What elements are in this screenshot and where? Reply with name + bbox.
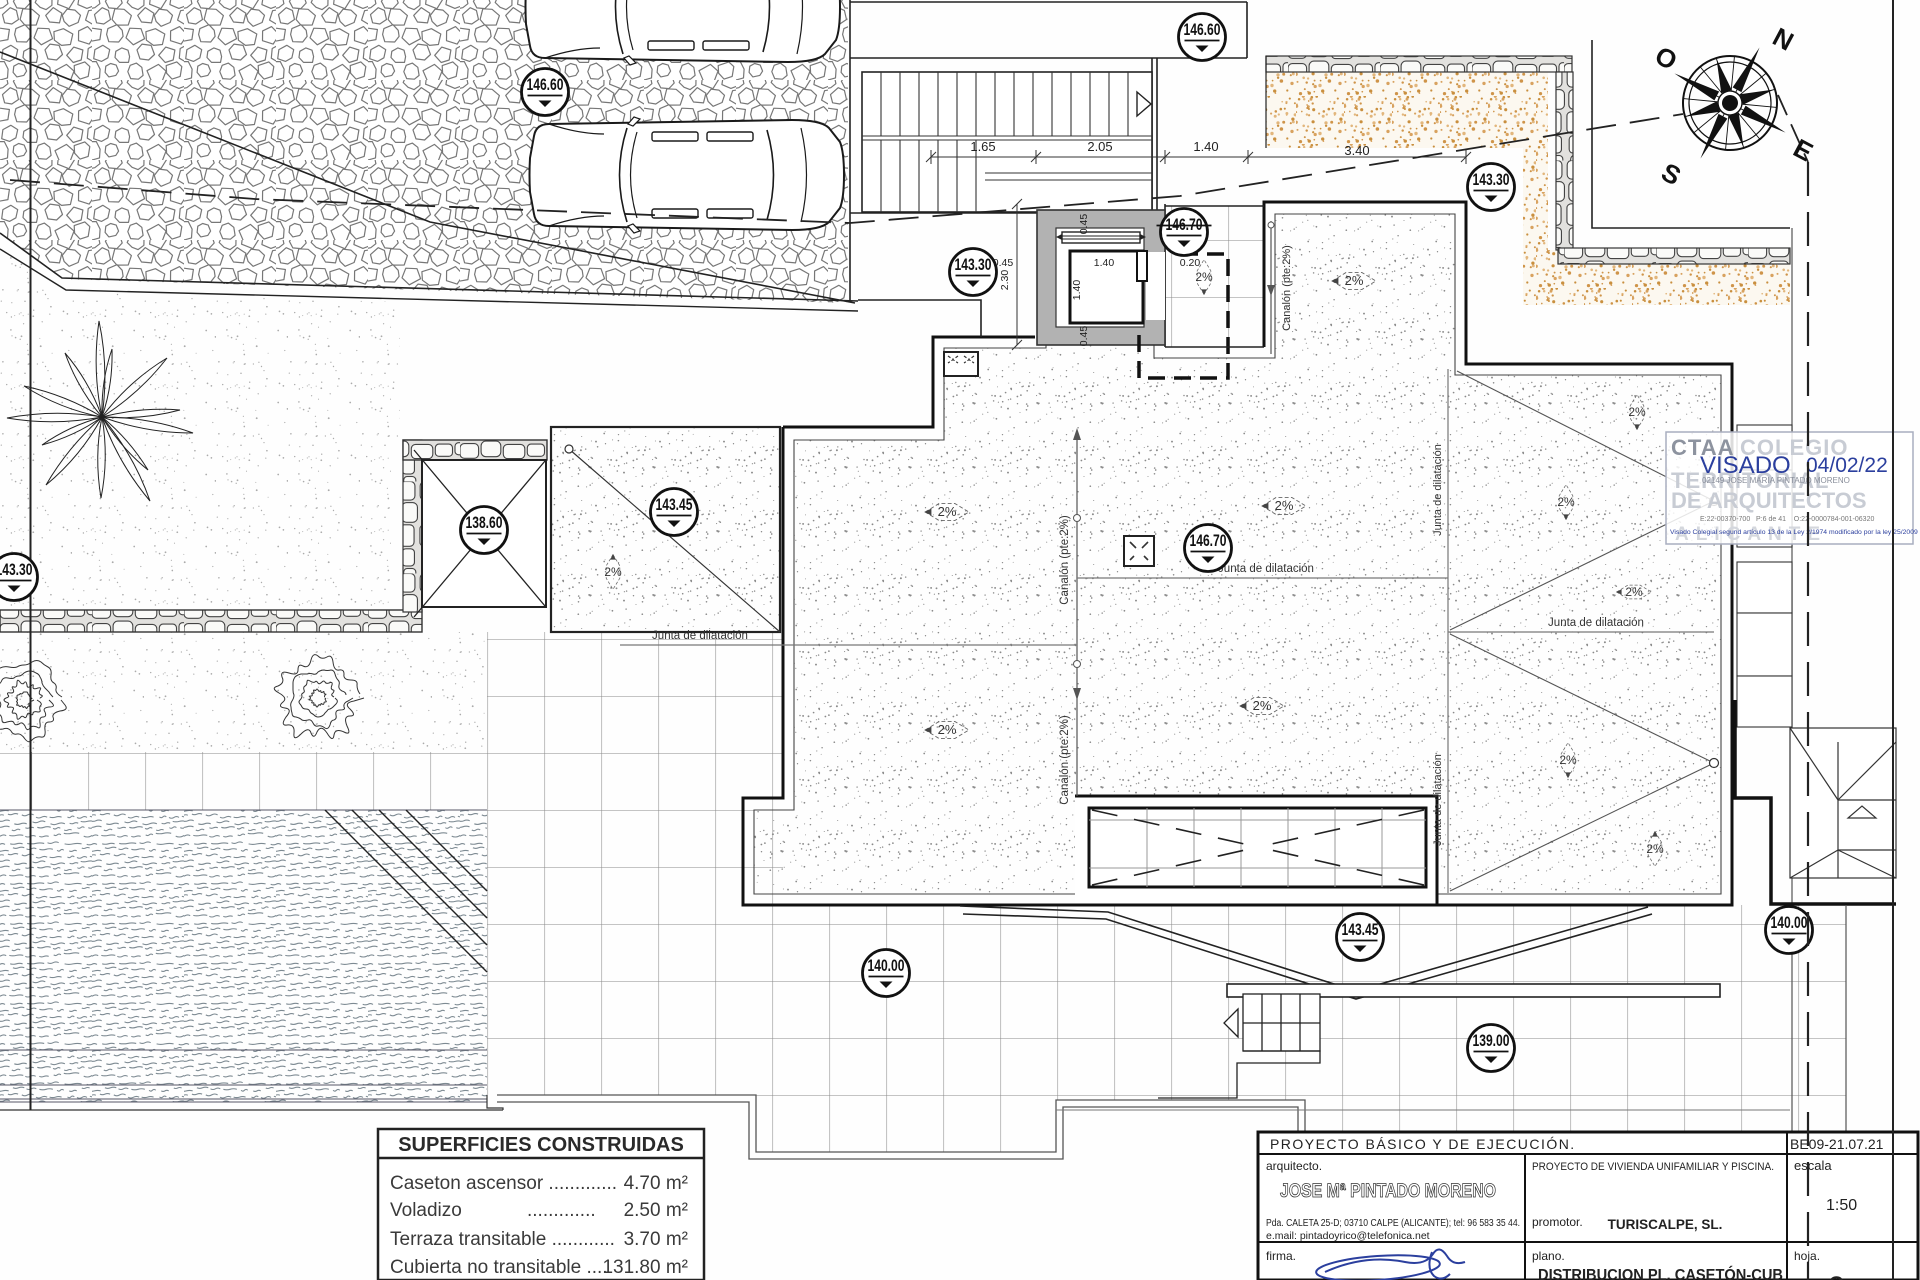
svg-text:3.40: 3.40 bbox=[1344, 143, 1369, 158]
svg-text:146.60: 146.60 bbox=[1184, 21, 1221, 39]
svg-text:2%: 2% bbox=[1275, 498, 1294, 513]
svg-text:VISADO: VISADO bbox=[1700, 452, 1791, 479]
svg-text:138.60: 138.60 bbox=[466, 514, 503, 532]
svg-text:Voladizo: Voladizo bbox=[390, 1200, 462, 1221]
svg-text:hoja.: hoja. bbox=[1794, 1249, 1820, 1263]
svg-text:Visado Colegial segund artícul: Visado Colegial segund artículo 13 de la… bbox=[1670, 529, 1918, 536]
svg-text:Junta de dilatación: Junta de dilatación bbox=[1432, 444, 1444, 536]
svg-text:2%: 2% bbox=[1646, 842, 1664, 856]
svg-text:143.45: 143.45 bbox=[656, 496, 693, 514]
svg-text:1.40: 1.40 bbox=[1071, 280, 1083, 301]
svg-text:140.00: 140.00 bbox=[868, 957, 905, 975]
svg-text:arquitecto.: arquitecto. bbox=[1266, 1159, 1322, 1173]
svg-text:143.30: 143.30 bbox=[955, 256, 992, 274]
svg-text:Pda. CALETA 25-D; 03710 CALPE: Pda. CALETA 25-D; 03710 CALPE (ALICANTE)… bbox=[1266, 1218, 1520, 1229]
svg-text:139.00: 139.00 bbox=[1473, 1032, 1510, 1050]
svg-text:2.50 m²: 2.50 m² bbox=[624, 1200, 688, 1221]
svg-text:2%: 2% bbox=[1195, 270, 1213, 284]
svg-text:PROYECTO BÁSICO Y DE EJECU: PROYECTO BÁSICO Y DE EJECUCIÓN. bbox=[1270, 1136, 1576, 1152]
svg-text:Canalón (pte:2%): Canalón (pte:2%) bbox=[1059, 515, 1071, 605]
svg-text:SUPERFICIES CONSTRUIDAS: SUPERFICIES CONSTRUIDAS bbox=[398, 1134, 684, 1156]
svg-text:143.30: 143.30 bbox=[1473, 171, 1510, 189]
svg-text:PROYECTO DE VIVIENDA UNIFAMILI: PROYECTO DE VIVIENDA UNIFAMILIAR Y PISCI… bbox=[1532, 1161, 1774, 1173]
svg-text:2%: 2% bbox=[1628, 405, 1646, 419]
svg-text:02149 JOSE MARIA PINTADO MOREN: 02149 JOSE MARIA PINTADO MORENO bbox=[1702, 476, 1850, 485]
svg-text:Canalón (pte:2%): Canalón (pte:2%) bbox=[1281, 245, 1293, 331]
svg-text:0.45: 0.45 bbox=[1078, 326, 1090, 347]
svg-text:.............: ............. bbox=[527, 1200, 596, 1221]
svg-text:Canalón (pte:2%): Canalón (pte:2%) bbox=[1059, 715, 1071, 805]
svg-text:146.70: 146.70 bbox=[1190, 532, 1227, 550]
svg-text:promotor.: promotor. bbox=[1532, 1215, 1583, 1229]
svg-text:Junta de dilatación: Junta de dilatación bbox=[1432, 754, 1444, 846]
svg-text:Terraza transitable .........: Terraza transitable ............ bbox=[390, 1229, 615, 1250]
svg-text:2%: 2% bbox=[1625, 585, 1643, 599]
svg-text:escala: escala bbox=[1794, 1158, 1832, 1173]
svg-text:firma.: firma. bbox=[1266, 1249, 1296, 1263]
svg-text:DISTRIBUCION PL. CASETÓN-CUB: DISTRIBUCION PL. CASETÓN-CUB bbox=[1538, 1265, 1783, 1280]
svg-text:1.65: 1.65 bbox=[970, 139, 995, 154]
svg-text:0.20: 0.20 bbox=[1180, 257, 1201, 269]
svg-text:1.40: 1.40 bbox=[1193, 139, 1218, 154]
svg-text:143.45: 143.45 bbox=[1342, 921, 1379, 939]
svg-text:2%: 2% bbox=[1253, 698, 1272, 713]
svg-text:1.40: 1.40 bbox=[1094, 257, 1115, 269]
svg-text:Junta de dilatación: Junta de dilatación bbox=[1218, 563, 1314, 575]
svg-text:143.30: 143.30 bbox=[0, 561, 33, 579]
svg-text:4.70 m²: 4.70 m² bbox=[624, 1173, 688, 1194]
svg-text:2%: 2% bbox=[1345, 273, 1364, 288]
svg-text:131.80 m²: 131.80 m² bbox=[602, 1257, 688, 1278]
svg-text:DE ARQUITECTOS: DE ARQUITECTOS bbox=[1671, 488, 1867, 513]
svg-text:2.05: 2.05 bbox=[1087, 139, 1112, 154]
svg-text:Junta de dilatación: Junta de dilatación bbox=[1548, 617, 1644, 629]
svg-text:JOSE Mª PINTADO MORENO: JOSE Mª PINTADO MORENO bbox=[1280, 1181, 1496, 1202]
svg-text:2%: 2% bbox=[938, 722, 957, 737]
svg-text:TURISCALPE, SL.: TURISCALPE, SL. bbox=[1608, 1217, 1723, 1232]
svg-text:3.70 m²: 3.70 m² bbox=[624, 1229, 688, 1250]
svg-text:2%: 2% bbox=[604, 565, 622, 579]
svg-text:2.30: 2.30 bbox=[999, 270, 1011, 291]
svg-text:2%: 2% bbox=[1559, 753, 1577, 767]
svg-text:e.mail: pintadoyrico@telefonic: e.mail: pintadoyrico@telefonica.net bbox=[1266, 1230, 1430, 1242]
svg-text:146.60: 146.60 bbox=[527, 76, 564, 94]
svg-text:0.45: 0.45 bbox=[1078, 214, 1090, 235]
svg-text:plano.: plano. bbox=[1532, 1249, 1565, 1263]
svg-text:140.00: 140.00 bbox=[1771, 914, 1808, 932]
svg-text:BE09-21.07.21: BE09-21.07.21 bbox=[1790, 1136, 1884, 1152]
svg-text:2%: 2% bbox=[938, 504, 957, 519]
svg-text:Junta de dilatación: Junta de dilatación bbox=[652, 630, 748, 642]
svg-text:2: 2 bbox=[1828, 1271, 1845, 1280]
svg-text:Caseton ascensor .............: Caseton ascensor ............. bbox=[390, 1173, 617, 1194]
svg-text:04/02/22: 04/02/22 bbox=[1806, 454, 1888, 477]
svg-text:1:50: 1:50 bbox=[1826, 1197, 1857, 1214]
svg-text:Cubierta no transitable ....: Cubierta no transitable .... bbox=[390, 1257, 608, 1278]
svg-text:E:22-00370-700 P:6 de 41: E:22-00370-700 P:6 de 41 O:22-0000784-00… bbox=[1700, 516, 1874, 523]
svg-text:2%: 2% bbox=[1557, 495, 1575, 509]
